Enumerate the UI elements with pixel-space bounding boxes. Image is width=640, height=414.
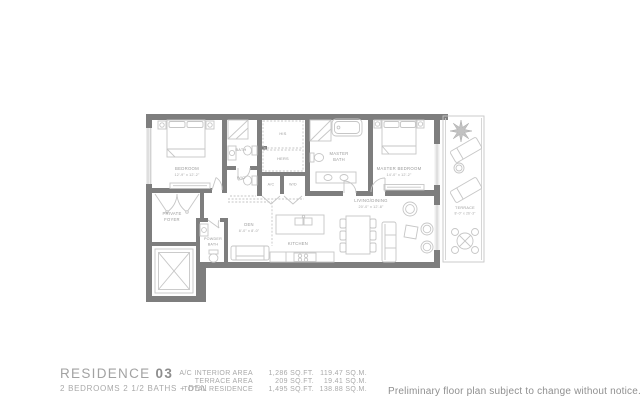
residence-label: RESIDENCE [60, 366, 150, 381]
living-dining-dims: 20'-0" x 12'-8" [359, 205, 384, 209]
stat-sqm: 19.41 SQ.M. [315, 378, 367, 386]
stat-label: TERRACE AREA [150, 378, 253, 386]
floor-plan-svg: BEDROOM 12'-9" x 12'-2" BATH W/C HIS HER… [0, 0, 640, 414]
bath-label: BATH [235, 147, 246, 152]
stat-sqm: 138.88 SQ.M. [315, 386, 367, 394]
living-dining-label: LIVING/DINING [354, 198, 388, 203]
bedroom-label: BEDROOM [175, 166, 199, 171]
elevator [150, 242, 200, 298]
stat-sqft: 1,286 SQ.FT. [254, 370, 314, 378]
hers-label: HERS [277, 156, 289, 161]
doors [155, 168, 385, 228]
floor-plan-page: BEDROOM 12'-9" x 12'-2" BATH W/C HIS HER… [0, 0, 640, 414]
area-stats-table: A/C INTERIOR AREA 1,286 SQ.FT. 119.47 SQ… [150, 370, 367, 395]
wd-label: W/D [289, 183, 297, 187]
powder-bath-label-1: POWDER [204, 237, 222, 241]
powder-bath-label-2: BATH [208, 243, 219, 247]
bedroom-furniture [158, 120, 214, 189]
stat-label: A/C INTERIOR AREA [150, 370, 253, 378]
disclaimer-text: Preliminary floor plan subject to change… [388, 386, 640, 397]
bedroom-dims: 12'-9" x 12'-2" [175, 173, 200, 177]
kitchen-fixtures [270, 215, 334, 262]
ac-label: A/C [268, 183, 275, 187]
living-dining-furniture [340, 202, 433, 262]
den-dims: 8'-0" x 8'-0" [239, 229, 260, 233]
kitchen-label: KITCHEN [288, 241, 308, 246]
stat-label: TOTAL RESIDENCE [150, 386, 253, 394]
den-label: DEN [244, 222, 254, 227]
his-label: HIS [279, 131, 286, 136]
master-bedroom-dims: 14'-0" x 12'-2" [387, 173, 412, 177]
master-bedroom-label: MASTER BEDROOM [377, 166, 422, 171]
bath-fixtures [228, 120, 257, 160]
terrace-furniture [450, 120, 482, 254]
private-foyer-label-2: FOYER [164, 217, 180, 222]
master-bedroom-furniture [374, 120, 424, 190]
stat-sqm: 119.47 SQ.M. [315, 370, 367, 378]
compass-star-icon [450, 120, 472, 142]
private-foyer-label-1: PRIVATE [162, 211, 181, 216]
closets [263, 121, 303, 171]
terrace-label: TERRACE [455, 206, 475, 210]
wc-label: W/C [237, 175, 245, 180]
terrace-dims: 8'-0" x 26'-3" [454, 212, 476, 216]
stat-sqft: 1,495 SQ.FT. [254, 386, 314, 394]
master-bath-label-1: MASTER [330, 151, 349, 156]
stat-sqft: 209 SQ.FT. [254, 378, 314, 386]
master-bath-label-2: BATH [333, 157, 345, 162]
